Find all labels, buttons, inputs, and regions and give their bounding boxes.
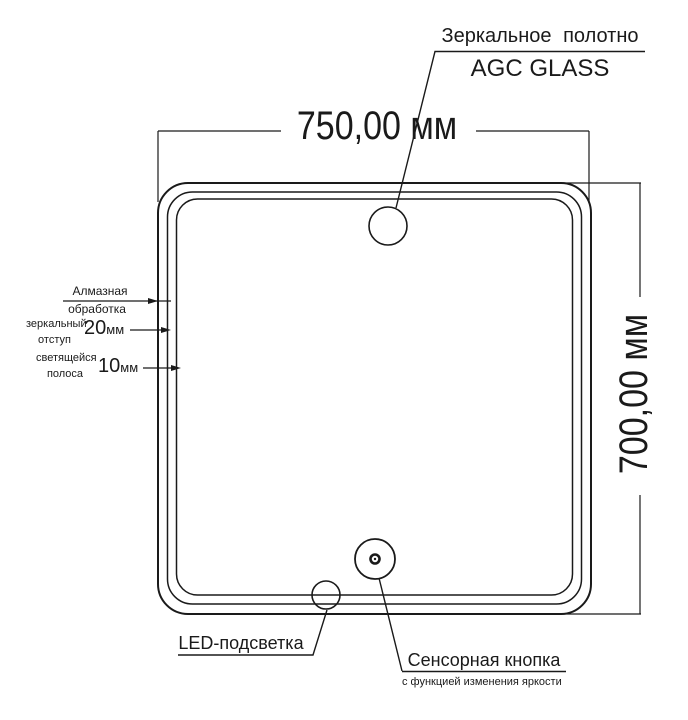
diamond-edge-label-line2: обработка xyxy=(54,303,140,316)
mirror-offset-number: 20 xyxy=(84,317,106,339)
mirror-offset-label-line1: зеркальный xyxy=(26,318,83,330)
mirror-offset-arrowhead xyxy=(161,327,171,333)
glass-callout-title: Зеркальное полотно xyxy=(430,25,650,47)
touch-button-dot xyxy=(374,558,376,560)
glass-brand-label: AGC GLASS xyxy=(430,56,650,82)
touch-button-label: Сенсорная кнопка xyxy=(402,651,566,671)
light-strip-value: 10мм xyxy=(98,355,138,377)
mirror-offset-outline xyxy=(168,192,582,604)
light-strip-label-line2: полоса xyxy=(36,368,94,380)
height-dimension-value: 700,00 мм xyxy=(612,309,656,479)
light-strip-label-line1: светящейся xyxy=(36,352,94,364)
diamond-edge-arrowhead xyxy=(148,298,158,304)
touch-button-sublabel: с функцией изменения яркости xyxy=(402,676,562,688)
mirror-technical-drawing: Зеркальное полотно AGC GLASS 750,00 мм 7… xyxy=(0,0,688,720)
mirror-offset-unit: мм xyxy=(106,322,124,337)
diamond-edge-label-line1: Алмазная xyxy=(57,285,143,298)
led-backlight-label: LED-подсветка xyxy=(175,634,307,654)
width-dimension-value: 750,00 мм xyxy=(292,104,462,148)
mirror-outer-outline xyxy=(158,183,591,614)
glass-callout-circle xyxy=(369,207,407,245)
mirror-offset-value: 20мм xyxy=(84,317,124,339)
mirror-offset-label-line2: отступ xyxy=(26,334,83,346)
light-strip-unit: мм xyxy=(120,360,138,375)
light-strip-number: 10 xyxy=(98,355,120,377)
light-strip-outline xyxy=(177,199,573,595)
